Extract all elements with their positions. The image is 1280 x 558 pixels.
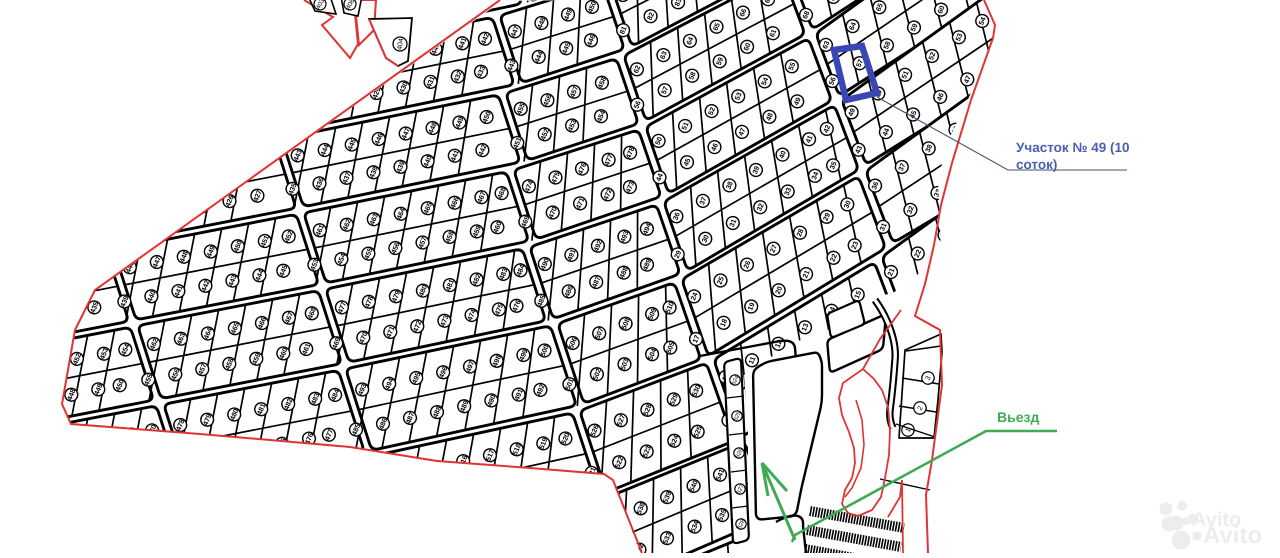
svg-text:Avito: Avito bbox=[1203, 522, 1262, 549]
svg-text:Вьезд: Вьезд bbox=[997, 409, 1039, 425]
svg-text:Участок № 49 (10: Участок № 49 (10 bbox=[1016, 140, 1130, 155]
svg-text:соток): соток) bbox=[1016, 157, 1057, 172]
